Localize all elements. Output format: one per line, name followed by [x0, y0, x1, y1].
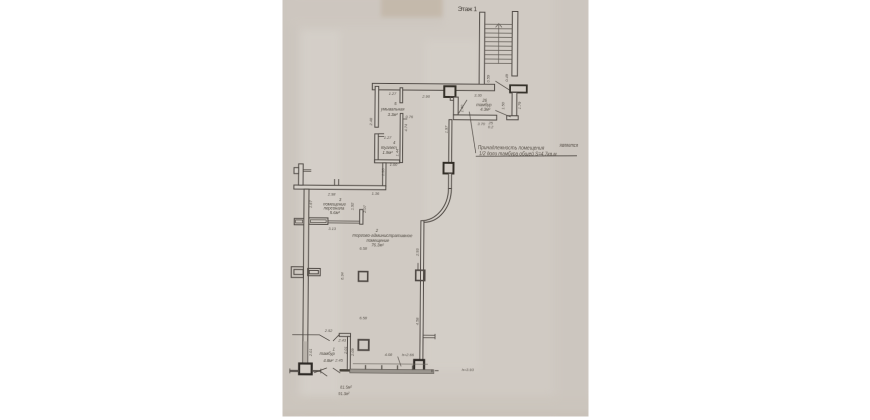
svg-text:2.07: 2.07 — [362, 204, 367, 213]
svg-text:2.09: 2.09 — [350, 348, 355, 357]
svg-text:2.01: 2.01 — [343, 346, 348, 355]
svg-text:h=2.66: h=2.66 — [402, 352, 415, 357]
svg-text:2.98: 2.98 — [327, 191, 336, 196]
svg-text:1/2 доли тамбура общей S=4,7кв: 1/2 доли тамбура общей S=4,7кв.м — [479, 150, 557, 158]
svg-text:4.3м²: 4.3м² — [480, 107, 491, 112]
svg-text:1.79: 1.79 — [517, 101, 522, 109]
svg-text:3.30: 3.30 — [474, 93, 482, 98]
svg-text:2.52: 2.52 — [324, 328, 333, 333]
svg-text:2.48: 2.48 — [368, 117, 373, 126]
svg-text:1.36: 1.36 — [372, 191, 380, 196]
svg-text:1.9м²: 1.9м² — [383, 150, 394, 155]
svg-text:5.6м²: 5.6м² — [330, 210, 341, 215]
svg-text:тамбур: тамбур — [320, 351, 336, 356]
svg-text:0.59: 0.59 — [485, 74, 490, 82]
svg-text:2.43: 2.43 — [337, 337, 346, 342]
svg-text:4.08: 4.08 — [385, 352, 393, 357]
svg-text:1.44: 1.44 — [394, 148, 399, 156]
svg-text:6.58: 6.58 — [359, 246, 367, 251]
svg-text:1.00: 1.00 — [390, 162, 398, 167]
svg-text:Этаж 1: Этаж 1 — [458, 6, 478, 13]
svg-text:6.58: 6.58 — [359, 315, 367, 320]
svg-text:1.58: 1.58 — [380, 168, 385, 176]
svg-text:2.93: 2.93 — [415, 248, 420, 257]
svg-text:2.45: 2.45 — [334, 357, 343, 362]
svg-text:3.13: 3.13 — [328, 226, 336, 231]
svg-text:0.49: 0.49 — [504, 73, 509, 81]
svg-text:является: является — [559, 143, 579, 149]
svg-text:2.90: 2.90 — [421, 94, 430, 99]
svg-text:3.70: 3.70 — [477, 121, 485, 126]
svg-text:6.34: 6.34 — [340, 271, 345, 279]
svg-text:h=3.93: h=3.93 — [462, 367, 475, 372]
svg-text:1.92: 1.92 — [350, 202, 355, 210]
svg-text:0.2: 0.2 — [488, 124, 494, 129]
svg-text:76.3м²: 76.3м² — [371, 242, 384, 247]
svg-text:1.97: 1.97 — [443, 125, 448, 133]
svg-text:0.76: 0.76 — [405, 114, 413, 119]
svg-text:4.58: 4.58 — [415, 317, 420, 325]
svg-text:81.5м²: 81.5м² — [340, 385, 352, 391]
svg-text:1.67: 1.67 — [308, 200, 313, 208]
svg-text:1.27: 1.27 — [389, 91, 397, 96]
svg-text:1.50: 1.50 — [500, 101, 505, 109]
svg-text:4.8м²: 4.8м² — [323, 358, 334, 363]
svg-text:4.74: 4.74 — [403, 123, 408, 131]
svg-text:2.01: 2.01 — [308, 349, 313, 358]
svg-text:1.40: 1.40 — [459, 104, 464, 112]
svg-text:3.3м²: 3.3м² — [388, 112, 399, 117]
svg-text:91.3м²: 91.3м² — [338, 391, 349, 397]
svg-text:1.27: 1.27 — [384, 135, 392, 140]
